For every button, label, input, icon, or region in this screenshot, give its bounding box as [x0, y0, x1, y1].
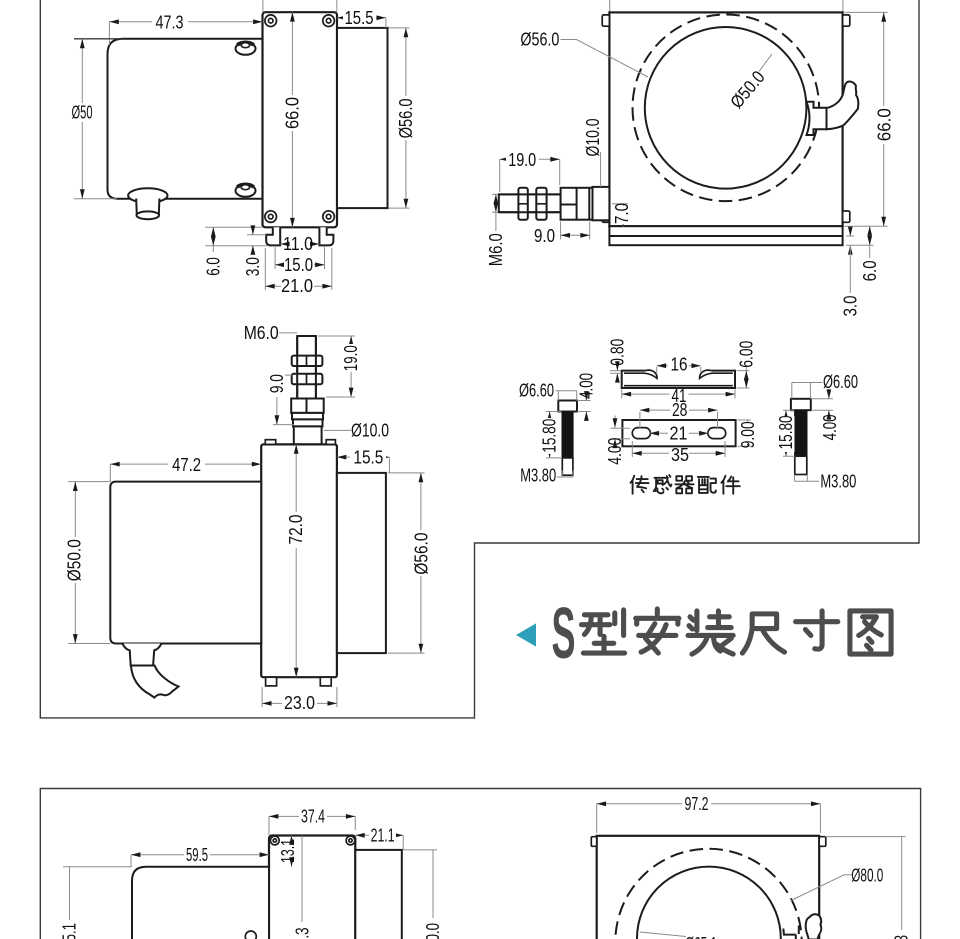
svg-text:66.0: 66.0 [282, 97, 302, 129]
svg-text:Ø55.1: Ø55.1 [60, 923, 80, 939]
svg-text:47.3: 47.3 [156, 13, 184, 33]
svg-text:M3.80: M3.80 [820, 471, 856, 491]
svg-text:9.0: 9.0 [534, 226, 555, 246]
svg-text:Ø56.0: Ø56.0 [396, 98, 416, 138]
svg-text:11.0: 11.0 [283, 234, 313, 254]
svg-text:Ø56.0: Ø56.0 [520, 30, 559, 50]
svg-text:M6.0: M6.0 [486, 233, 506, 266]
svg-text:6.0: 6.0 [203, 257, 223, 276]
svg-text:72.0: 72.0 [286, 515, 306, 545]
svg-text:19.0: 19.0 [341, 345, 361, 371]
svg-text:21.0: 21.0 [281, 276, 313, 296]
svg-text:15.80: 15.80 [776, 415, 796, 449]
svg-text:21: 21 [670, 423, 688, 443]
svg-text:Ø6.60: Ø6.60 [823, 372, 858, 392]
svg-text:3.0: 3.0 [243, 257, 263, 276]
svg-text:4.00: 4.00 [820, 414, 840, 440]
svg-text:6.00: 6.00 [736, 341, 756, 368]
svg-text:59.5: 59.5 [186, 845, 208, 865]
svg-text:15.5: 15.5 [353, 447, 383, 467]
svg-text:M3.80: M3.80 [520, 466, 556, 486]
svg-text:7.0: 7.0 [612, 203, 632, 224]
svg-text:15.5: 15.5 [345, 8, 374, 28]
svg-text:4.00: 4.00 [605, 438, 625, 465]
svg-text:19.0: 19.0 [508, 150, 536, 170]
svg-text:Ø50.0: Ø50.0 [65, 539, 85, 581]
svg-text:Ø80.0: Ø80.0 [851, 866, 883, 886]
svg-text:Ø70.0: Ø70.0 [423, 923, 443, 939]
svg-text:97.2: 97.2 [685, 794, 709, 814]
svg-text:Ø65.1: Ø65.1 [685, 934, 717, 939]
svg-text:0.80: 0.80 [607, 339, 627, 366]
svg-text:15.80: 15.80 [539, 419, 559, 453]
svg-text:9.00: 9.00 [738, 421, 758, 448]
svg-text:6.0: 6.0 [860, 260, 880, 281]
svg-text:Ø6.60: Ø6.60 [519, 380, 554, 400]
svg-text:M6.0: M6.0 [244, 323, 279, 343]
svg-text:35: 35 [671, 445, 689, 465]
svg-text:Ø10.0: Ø10.0 [351, 420, 389, 440]
svg-text:28: 28 [672, 400, 688, 420]
svg-text:13.1: 13.1 [278, 839, 298, 863]
svg-text:21.1: 21.1 [371, 826, 395, 846]
svg-text:66.0: 66.0 [874, 108, 894, 141]
svg-text:Ø50: Ø50 [72, 102, 93, 122]
svg-text:S: S [552, 593, 576, 674]
svg-text:Ø56.0: Ø56.0 [412, 533, 432, 575]
svg-text:4.00: 4.00 [576, 373, 596, 399]
svg-text:66.3: 66.3 [292, 928, 312, 939]
svg-text:9.0: 9.0 [267, 374, 287, 393]
svg-text:47.2: 47.2 [172, 455, 201, 475]
svg-text:Ø10.0: Ø10.0 [583, 119, 603, 157]
svg-text:15.0: 15.0 [284, 255, 313, 275]
svg-text:23.0: 23.0 [284, 693, 315, 713]
svg-text:3.0: 3.0 [840, 296, 860, 317]
svg-text:16: 16 [671, 355, 688, 375]
svg-text:86.3: 86.3 [892, 935, 912, 939]
svg-text:37.4: 37.4 [301, 807, 325, 827]
